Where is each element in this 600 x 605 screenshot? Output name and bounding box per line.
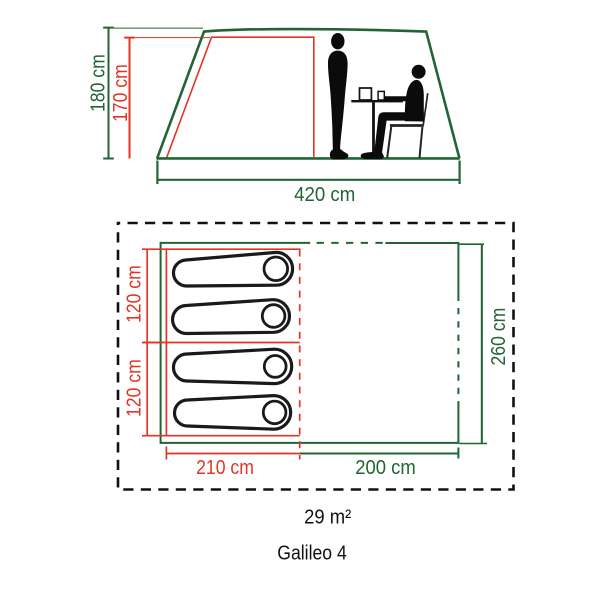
svg-text:120 cm: 120 cm bbox=[123, 265, 146, 323]
svg-text:170 cm: 170 cm bbox=[110, 64, 133, 122]
svg-text:120 cm: 120 cm bbox=[123, 359, 146, 417]
svg-text:200 cm: 200 cm bbox=[355, 456, 416, 479]
svg-text:420 cm: 420 cm bbox=[294, 183, 355, 206]
svg-text:210 cm: 210 cm bbox=[196, 457, 254, 480]
svg-text:180 cm: 180 cm bbox=[87, 54, 110, 112]
svg-text:260 cm: 260 cm bbox=[488, 308, 511, 366]
svg-text:Galileo 4: Galileo 4 bbox=[277, 542, 347, 565]
svg-text:29 m²: 29 m² bbox=[304, 506, 352, 529]
